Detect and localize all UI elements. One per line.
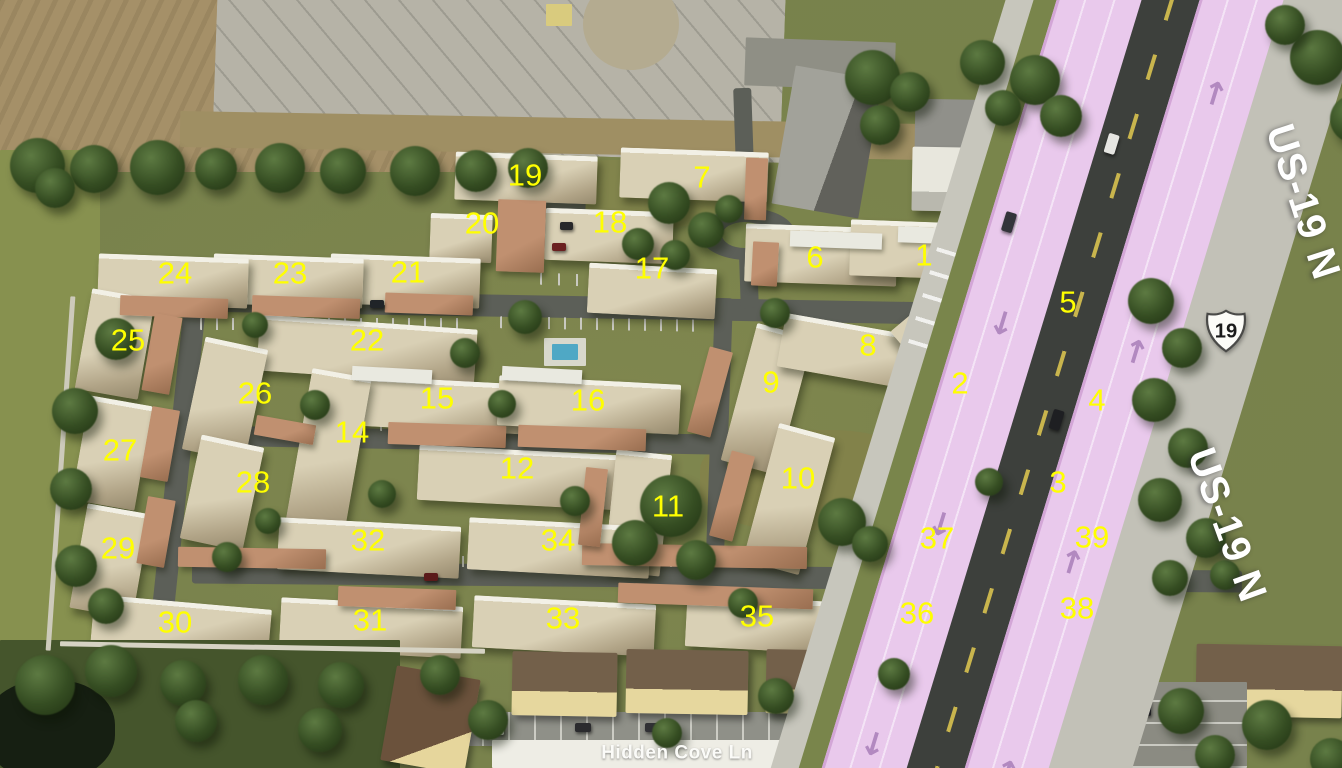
tree (1162, 328, 1202, 368)
building (284, 368, 371, 538)
tree (1265, 5, 1305, 45)
carport (744, 158, 768, 221)
tree (255, 143, 305, 193)
tree (1186, 518, 1226, 558)
carport (385, 292, 474, 315)
building (429, 213, 493, 263)
vehicle (1078, 752, 1087, 766)
tree (130, 140, 185, 195)
tree (52, 388, 98, 434)
building (472, 595, 656, 656)
tree (715, 195, 743, 223)
tree (758, 678, 794, 714)
tree (450, 338, 480, 368)
tree (1310, 738, 1342, 768)
ground-patch (552, 344, 578, 360)
tree (985, 90, 1021, 126)
building (180, 435, 265, 552)
carport (178, 547, 326, 570)
tree (298, 708, 342, 752)
tree (622, 228, 654, 260)
carport-white (790, 230, 883, 249)
tree (488, 390, 516, 418)
tree (852, 526, 888, 562)
vehicle (575, 723, 591, 732)
tree (455, 150, 497, 192)
tree (760, 298, 790, 328)
building (835, 592, 999, 652)
tree (660, 240, 690, 270)
tree (55, 545, 97, 587)
building (911, 147, 1067, 214)
tree (1132, 378, 1176, 422)
ground-patch (546, 4, 572, 26)
vehicle (825, 722, 841, 731)
tree (1168, 428, 1208, 468)
carport (751, 241, 779, 286)
vehicle (424, 573, 438, 581)
tree (320, 148, 366, 194)
tree (212, 542, 242, 572)
tree (728, 588, 758, 618)
map-scenery (0, 0, 1342, 768)
tree (420, 655, 460, 695)
tree (368, 480, 396, 508)
tree (468, 700, 508, 740)
carport (496, 199, 546, 273)
vehicle (975, 722, 991, 731)
tree (300, 390, 330, 420)
tree (648, 182, 690, 224)
vehicle (1142, 700, 1151, 716)
tree (1128, 278, 1174, 324)
tree (1195, 735, 1235, 768)
tree (15, 655, 75, 715)
tree (160, 660, 206, 706)
tree (1152, 560, 1188, 596)
tree (390, 146, 440, 196)
tree (676, 540, 716, 580)
tree (195, 148, 237, 190)
tree (860, 105, 900, 145)
tree (508, 300, 542, 334)
building (587, 263, 717, 320)
building (903, 650, 1065, 768)
vehicle (552, 243, 566, 251)
carport (962, 540, 1167, 566)
tree (508, 148, 548, 188)
carport (518, 425, 647, 451)
tree (70, 145, 118, 193)
tree (238, 655, 288, 705)
tree (1210, 560, 1240, 590)
townhouse (511, 651, 617, 717)
tree (1242, 700, 1292, 750)
tree (50, 468, 92, 510)
townhouse (625, 649, 748, 715)
tree (175, 700, 217, 742)
tree (652, 718, 682, 748)
tree (1040, 95, 1082, 137)
tree (255, 508, 281, 534)
building (997, 586, 1158, 646)
aerial-map-viewport[interactable]: 1234567891011121415161718192021222324252… (0, 0, 1342, 768)
vehicle (1068, 700, 1077, 716)
tree (960, 40, 1005, 85)
tree (318, 662, 364, 708)
tree (1158, 688, 1204, 734)
vehicle (1048, 723, 1064, 732)
tree (88, 588, 124, 624)
tree (1330, 95, 1342, 143)
tree (85, 645, 137, 697)
tree (1138, 478, 1182, 522)
carport (388, 422, 507, 448)
tree (612, 520, 658, 566)
vehicle (370, 300, 384, 308)
tree (975, 468, 1003, 496)
tree (95, 318, 137, 360)
carport (338, 586, 457, 610)
vehicle (1100, 735, 1109, 751)
carport (252, 295, 361, 319)
carport (120, 295, 229, 319)
vehicle (560, 222, 573, 230)
tree (242, 312, 268, 338)
tree (878, 658, 910, 690)
tree (890, 72, 930, 112)
tree (35, 168, 75, 208)
tree (560, 486, 590, 516)
